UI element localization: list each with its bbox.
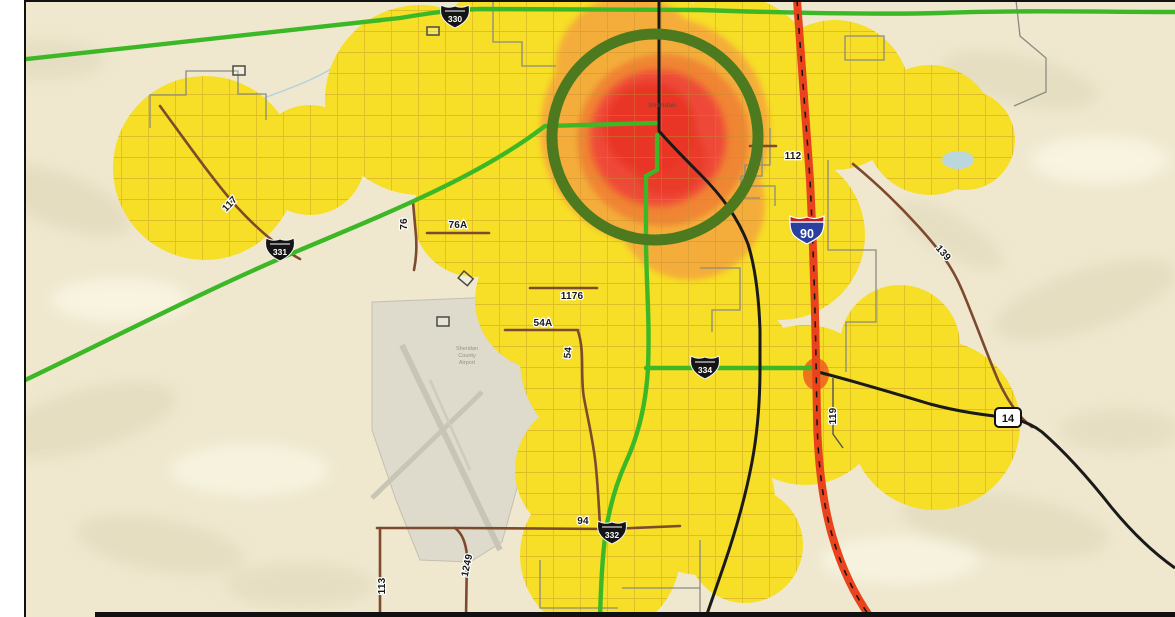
route-shield-330-number: 330	[448, 14, 462, 24]
road-label-94: 94	[577, 516, 589, 527]
svg-text:County: County	[458, 353, 476, 359]
road-label-54A: 54A	[534, 318, 553, 329]
lake	[942, 151, 974, 169]
route-shield-334-number: 334	[698, 365, 712, 375]
map-viewport[interactable]: Sheridan Sheridan County Airport 117 76 …	[0, 0, 1175, 617]
road-label-112: 112	[785, 151, 802, 162]
route-shield-331-number: 331	[273, 247, 287, 257]
road-label-76A: 76A	[449, 220, 468, 231]
road-label-76: 76	[399, 218, 410, 230]
road-label-1176: 1176	[561, 291, 584, 302]
map-canvas[interactable]: Sheridan Sheridan County Airport 117 76 …	[0, 0, 1175, 617]
road-label-119: 119	[828, 407, 839, 424]
interstate-90-number: 90	[800, 227, 814, 241]
airport-label: Sheridan County Airport	[456, 346, 478, 366]
road-label-54: 54	[562, 346, 574, 359]
svg-text:Airport: Airport	[459, 360, 476, 366]
city-label: Sheridan	[648, 102, 676, 109]
route-shield-332-number: 332	[605, 530, 619, 540]
svg-text:Sheridan: Sheridan	[456, 346, 478, 352]
road-label-113: 113	[377, 577, 388, 594]
us-route-14-shield: 14	[995, 408, 1021, 427]
us-route-14-number: 14	[1002, 413, 1015, 425]
